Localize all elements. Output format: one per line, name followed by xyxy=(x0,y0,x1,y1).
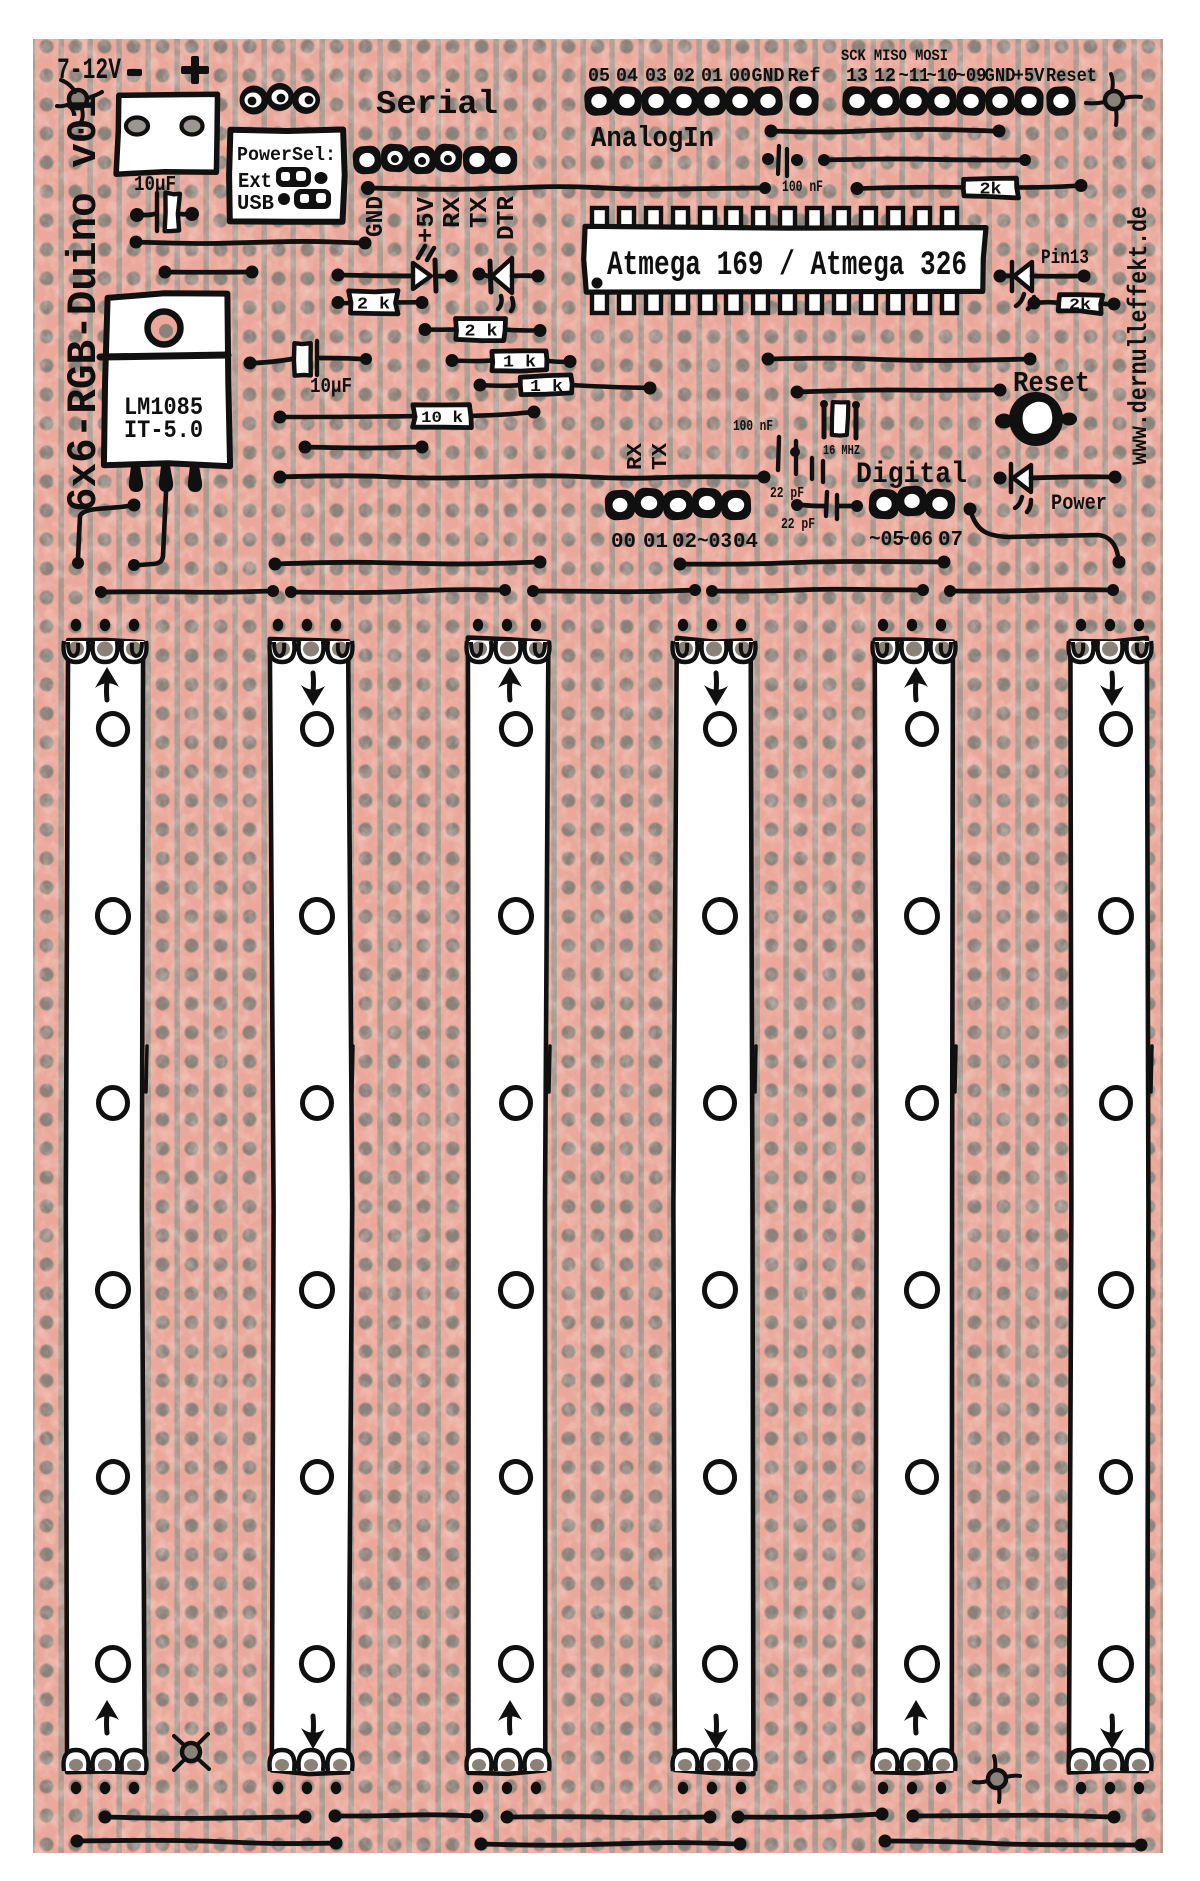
svg-text:10µF: 10µF xyxy=(310,376,352,399)
svg-text:1 k: 1 k xyxy=(503,354,536,373)
svg-text:100 nF: 100 nF xyxy=(733,418,773,435)
svg-text:04: 04 xyxy=(616,65,638,87)
svg-text:00: 00 xyxy=(611,531,636,554)
svg-text:DTR: DTR xyxy=(494,195,521,240)
svg-text:13: 13 xyxy=(846,65,868,87)
svg-text:Ref: Ref xyxy=(788,65,821,87)
svg-text:2k: 2k xyxy=(980,181,1002,200)
svg-text:Power: Power xyxy=(1051,491,1107,516)
svg-text:IT-5.0: IT-5.0 xyxy=(124,416,203,445)
svg-text:12: 12 xyxy=(874,65,896,87)
svg-text:TX: TX xyxy=(467,196,494,228)
svg-text:00: 00 xyxy=(729,65,751,87)
svg-text:SCK MISO MOSI: SCK MISO MOSI xyxy=(841,47,948,65)
svg-text:AnalogIn: AnalogIn xyxy=(591,122,714,155)
svg-text:RX: RX xyxy=(440,196,467,228)
svg-text:2k: 2k xyxy=(1069,296,1091,314)
svg-text:~10: ~10 xyxy=(927,65,958,87)
svg-text:2 k: 2 k xyxy=(465,323,498,342)
svg-text:10 k: 10 k xyxy=(421,409,463,427)
svg-text:PowerSel:: PowerSel: xyxy=(237,144,336,166)
svg-text:TX: TX xyxy=(650,443,673,470)
svg-text:2 k: 2 k xyxy=(357,296,390,315)
svg-text:02: 02 xyxy=(672,531,697,554)
svg-text:Reset: Reset xyxy=(1046,65,1097,87)
svg-text:22 pF: 22 pF xyxy=(781,516,815,533)
svg-text:16 MHZ: 16 MHZ xyxy=(823,443,860,459)
svg-text:01: 01 xyxy=(643,531,668,554)
svg-text:GND: GND xyxy=(752,65,785,87)
svg-text:www.dernulleffekt.de: www.dernulleffekt.de xyxy=(1124,206,1154,465)
svg-text:+5V: +5V xyxy=(1014,65,1046,87)
svg-text:07: 07 xyxy=(938,529,963,552)
svg-text:100 nF: 100 nF xyxy=(782,178,823,196)
svg-text:USB: USB xyxy=(237,193,274,216)
svg-text:~11: ~11 xyxy=(899,65,930,87)
svg-text:04: 04 xyxy=(733,531,758,554)
svg-text:GND: GND xyxy=(363,196,390,237)
svg-text:05: 05 xyxy=(588,65,610,87)
svg-text:Ext: Ext xyxy=(238,171,272,194)
svg-text:~09: ~09 xyxy=(956,65,987,87)
svg-text:~03: ~03 xyxy=(697,531,732,554)
svg-text:+5V: +5V xyxy=(414,196,441,243)
svg-text:7-12V: 7-12V xyxy=(57,54,121,88)
svg-text:Atmega 169 / Atmega 326: Atmega 169 / Atmega 326 xyxy=(607,247,967,285)
svg-text:GND: GND xyxy=(985,65,1016,87)
svg-text:6x6-RGB-Duino v01: 6x6-RGB-Duino v01 xyxy=(60,94,108,512)
svg-text:Serial: Serial xyxy=(376,86,498,123)
svg-text:~06: ~06 xyxy=(898,529,933,552)
svg-text:02: 02 xyxy=(673,65,695,87)
svg-text:01: 01 xyxy=(701,65,723,87)
svg-text:RX: RX xyxy=(625,443,648,470)
svg-text:03: 03 xyxy=(645,65,667,87)
svg-text:1 k: 1 k xyxy=(530,378,563,397)
svg-text:Pin13: Pin13 xyxy=(1041,247,1089,270)
